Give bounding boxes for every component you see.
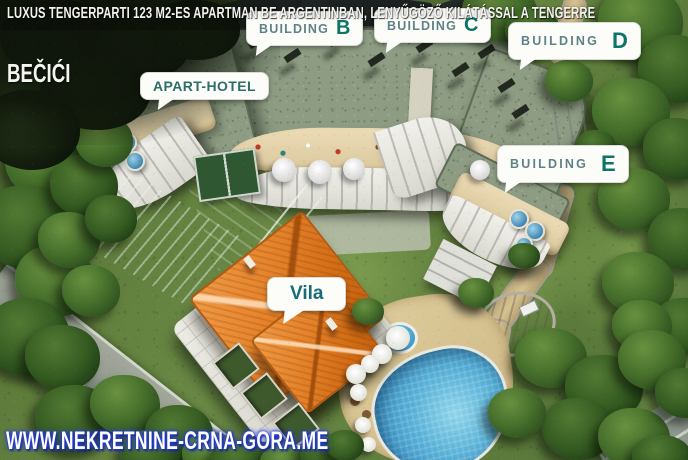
apart-hotel-label: APART-HOTEL bbox=[153, 78, 256, 94]
building-e-letter: E bbox=[601, 151, 616, 177]
awning-dome bbox=[272, 158, 296, 182]
tennis-court bbox=[193, 148, 261, 202]
awning-dome bbox=[343, 158, 365, 180]
website-watermark: WWW.NEKRETNINE-CRNA-GORA.ME bbox=[6, 427, 328, 456]
label-bubble-building-d: BUILDING D bbox=[508, 22, 641, 60]
tree bbox=[326, 430, 364, 460]
pool-umbrella bbox=[386, 326, 410, 350]
vila-label: Vila bbox=[290, 283, 323, 305]
building-e-prefix: BUILDING bbox=[510, 157, 588, 171]
tree bbox=[85, 195, 137, 243]
tree bbox=[458, 278, 494, 308]
pool-umbrella bbox=[350, 384, 367, 401]
pool-umbrella bbox=[346, 364, 366, 384]
building-d-letter: D bbox=[612, 28, 628, 54]
tree bbox=[488, 388, 546, 438]
tree bbox=[508, 243, 540, 269]
aerial-photo: APART-HOTEL BUILDING B BUILDING C BUILDI… bbox=[0, 0, 688, 460]
pool-umbrella bbox=[355, 417, 371, 433]
tree bbox=[545, 60, 593, 102]
tree bbox=[25, 325, 100, 390]
label-bubble-apart-hotel: APART-HOTEL bbox=[140, 72, 269, 100]
location-name: BEČIĆI bbox=[7, 58, 70, 89]
tree bbox=[62, 265, 120, 317]
building-b-prefix: BUILDING bbox=[259, 22, 329, 36]
awning-dome bbox=[470, 160, 490, 180]
tree bbox=[352, 298, 384, 325]
label-bubble-vila: Vila bbox=[267, 277, 346, 311]
listing-title: LUXUS TENGERPARTI 123 M2-ES APARTMAN BE … bbox=[7, 5, 595, 23]
awning-dome bbox=[308, 160, 332, 184]
building-d-prefix: BUILDING bbox=[521, 34, 599, 48]
label-bubble-building-e: BUILDING E bbox=[497, 145, 629, 183]
